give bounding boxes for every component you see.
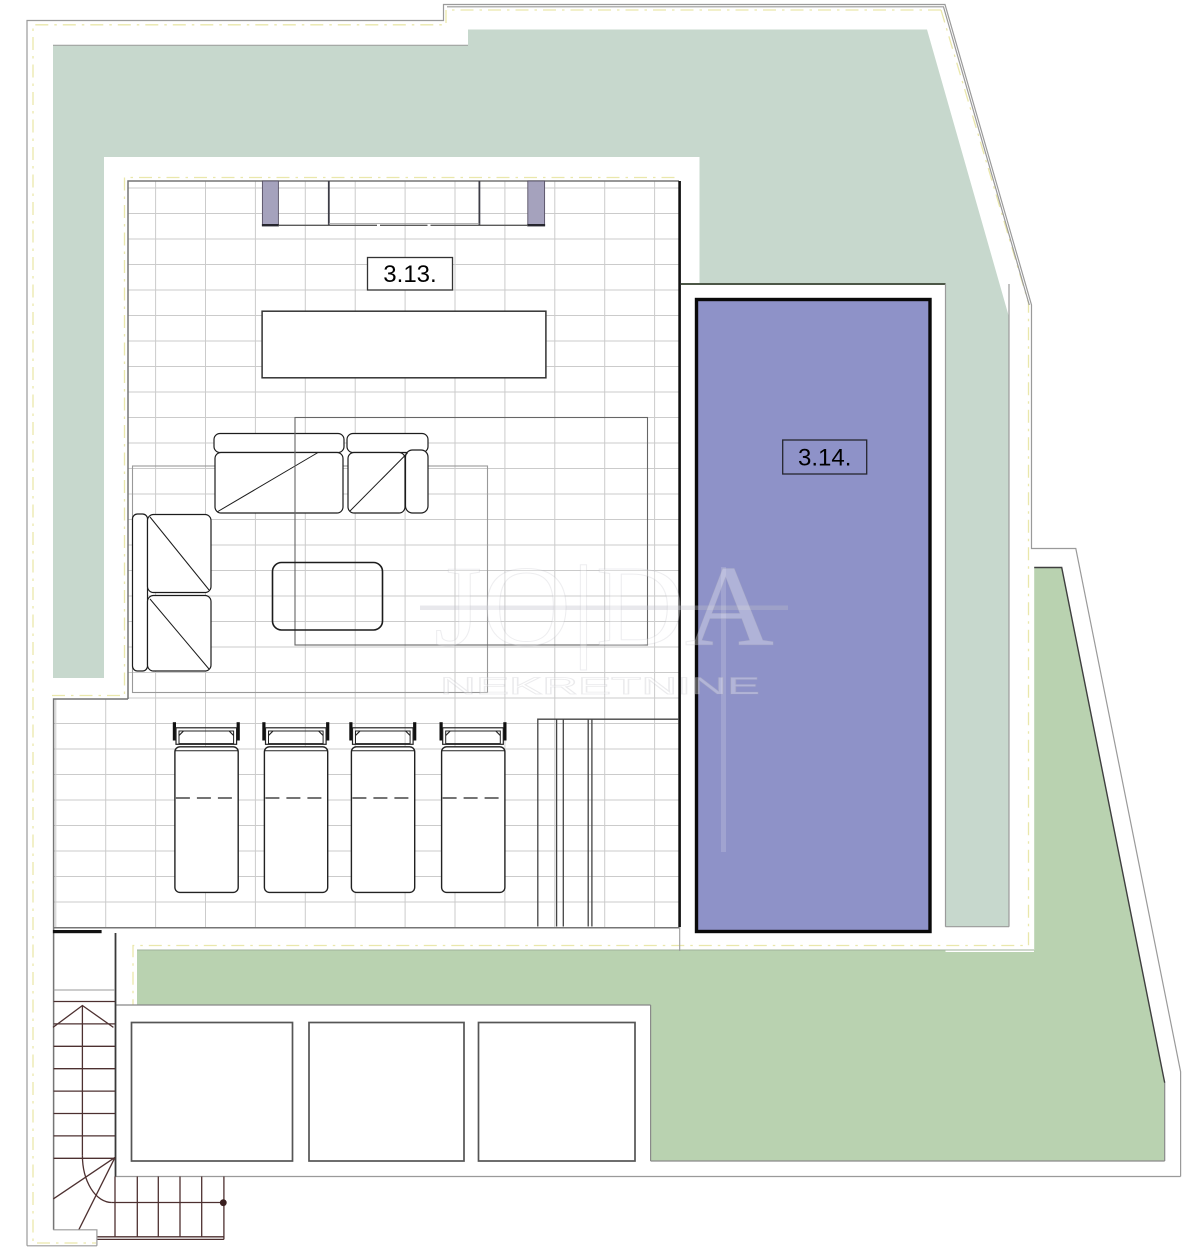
svg-text:NEKRETNINE: NEKRETNINE <box>440 673 760 700</box>
svg-text:3.14.: 3.14. <box>798 445 851 472</box>
svg-text:3.13.: 3.13. <box>383 261 436 288</box>
svg-text:JO|DA: JO|DA <box>434 543 774 670</box>
